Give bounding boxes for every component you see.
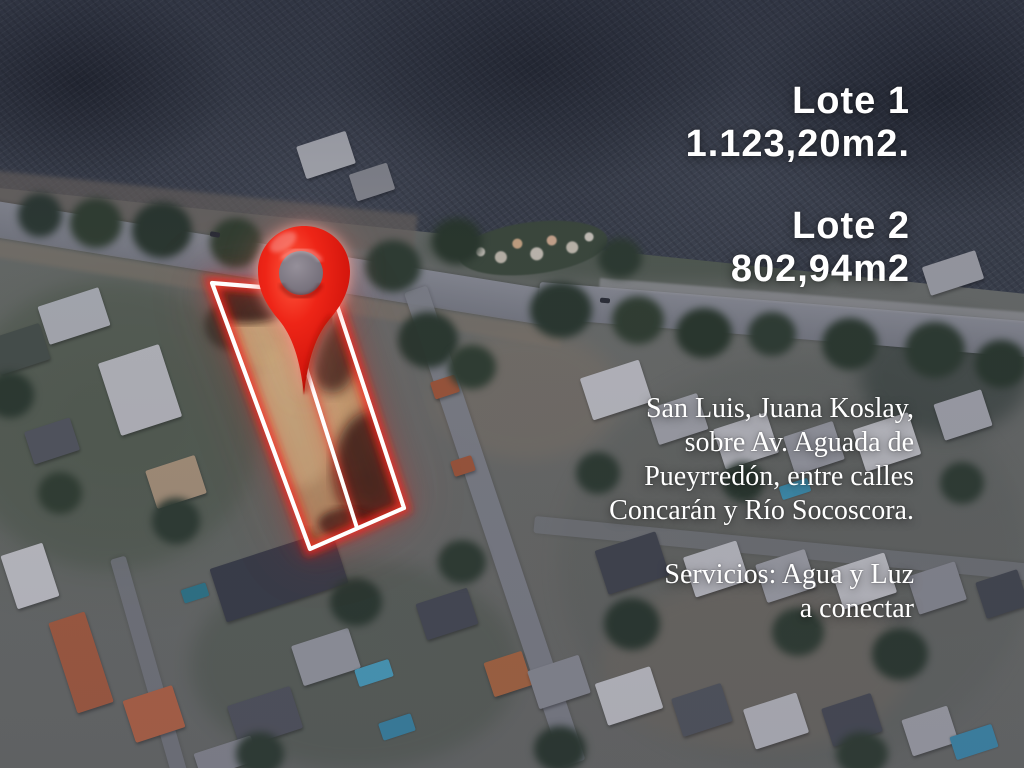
services-line: a conectar bbox=[609, 592, 914, 626]
spacer bbox=[686, 166, 910, 205]
lot2-title: Lote 2 bbox=[686, 205, 910, 248]
location-line: sobre Av. Aguada de bbox=[609, 426, 914, 460]
lot2-area: 802,94m2 bbox=[686, 248, 910, 291]
services-line: Servicios: Agua y Luz bbox=[609, 558, 914, 592]
location-and-services-block: San Luis, Juana Koslay, sobre Av. Aguada… bbox=[609, 392, 914, 626]
lot1-title: Lote 1 bbox=[686, 80, 910, 123]
spacer bbox=[609, 528, 914, 558]
location-line: Pueyrredón, entre calles bbox=[609, 460, 914, 494]
lot-areas-block: Lote 1 1.123,20m2. Lote 2 802,94m2 bbox=[686, 80, 910, 291]
location-line: San Luis, Juana Koslay, bbox=[609, 392, 914, 426]
lot1-area: 1.123,20m2. bbox=[686, 123, 910, 166]
real-estate-flyer: Lote 1 1.123,20m2. Lote 2 802,94m2 San L… bbox=[0, 0, 1024, 768]
location-line: Concarán y Río Socoscora. bbox=[609, 494, 914, 528]
